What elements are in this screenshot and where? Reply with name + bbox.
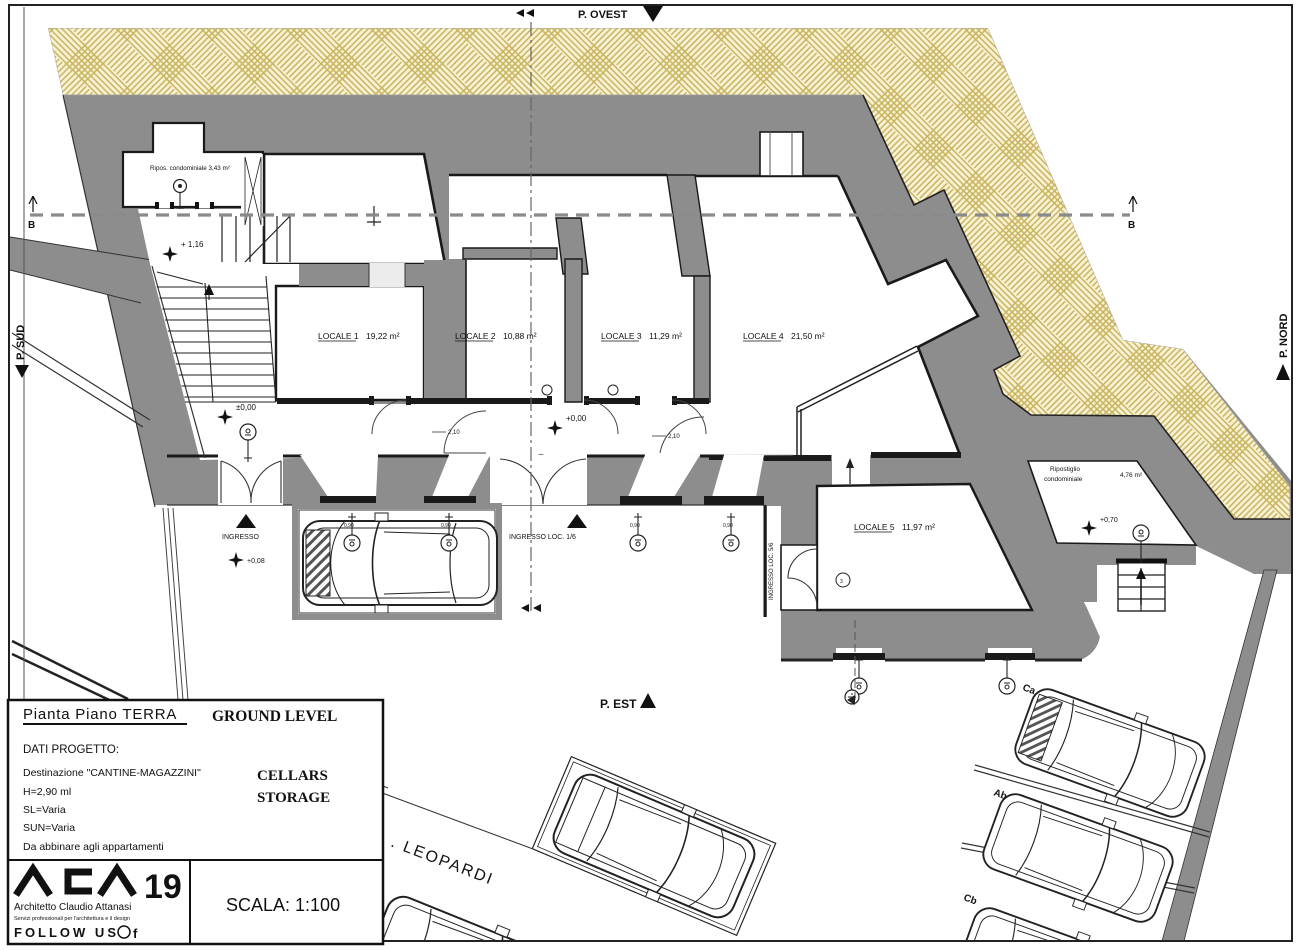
svg-text:INGRESSO LOC. 1/6: INGRESSO LOC. 1/6 <box>509 534 576 541</box>
svg-text:INGRESSO: INGRESSO <box>222 534 260 541</box>
svg-text:SL=Varia: SL=Varia <box>23 804 66 816</box>
svg-text:Architetto Claudio Attanasi: Architetto Claudio Attanasi <box>14 902 131 913</box>
svg-text:2,10: 2,10 <box>668 434 680 440</box>
svg-text:SCALA: 1:100: SCALA: 1:100 <box>226 895 340 915</box>
svg-text:f: f <box>133 926 138 941</box>
svg-text:P. SUD: P. SUD <box>15 325 27 360</box>
svg-text:0,90: 0,90 <box>344 523 354 529</box>
svg-text:LOCALE 1: LOCALE 1 <box>318 331 359 341</box>
svg-text:LOCALE 4: LOCALE 4 <box>743 331 784 341</box>
svg-text:B: B <box>28 220 35 231</box>
svg-text:Destinazione "CANTINE-MAGAZZIN: Destinazione "CANTINE-MAGAZZINI" <box>23 767 201 779</box>
svg-text:+0,08: +0,08 <box>247 558 265 565</box>
svg-text:FOLLOW US: FOLLOW US <box>14 925 119 940</box>
svg-text:+ 1,16: + 1,16 <box>181 240 204 249</box>
svg-text:19: 19 <box>144 868 182 906</box>
svg-text:2,10: 2,10 <box>448 430 460 436</box>
svg-text:0,90: 0,90 <box>723 523 733 529</box>
svg-text:P. EST: P. EST <box>600 697 637 711</box>
svg-text:SUN=Varia: SUN=Varia <box>23 822 75 834</box>
svg-text:Pianta Piano TERRA: Pianta Piano TERRA <box>23 706 177 723</box>
svg-text:Ripos. condominiale 3,43 m²: Ripos. condominiale 3,43 m² <box>150 165 230 172</box>
svg-text:+0,00: +0,00 <box>566 414 587 423</box>
svg-text:P. OVEST: P. OVEST <box>578 9 628 21</box>
svg-text:LOCALE 2: LOCALE 2 <box>455 331 496 341</box>
svg-text:P. NORD: P. NORD <box>1278 314 1290 358</box>
svg-text:+0,70: +0,70 <box>1100 517 1118 524</box>
svg-text:11,97 m²: 11,97 m² <box>902 522 935 532</box>
svg-text:Ripostiglio: Ripostiglio <box>1050 466 1080 473</box>
svg-text:3: 3 <box>840 579 843 585</box>
svg-text:DATI PROGETTO:: DATI PROGETTO: <box>23 744 119 756</box>
svg-text:LOCALE 3: LOCALE 3 <box>601 331 642 341</box>
svg-text:0,90: 0,90 <box>630 523 640 529</box>
svg-text:4,76 m²: 4,76 m² <box>1120 472 1143 479</box>
svg-text:19,22 m²: 19,22 m² <box>366 331 400 341</box>
svg-text:0,90: 0,90 <box>441 523 451 529</box>
svg-text:CELLARS: CELLARS <box>257 768 328 784</box>
svg-text:LOCALE 5: LOCALE 5 <box>854 522 895 532</box>
svg-text:H=2,90 ml: H=2,90 ml <box>23 786 71 798</box>
svg-text:STORAGE: STORAGE <box>257 790 330 806</box>
svg-text:10,88 m²: 10,88 m² <box>503 331 537 341</box>
svg-text:Da abbinare agli appartamenti: Da abbinare agli appartamenti <box>23 841 164 853</box>
svg-text:Servizi professionali per l'ar: Servizi professionali per l'architettura… <box>14 916 130 922</box>
svg-text:±0,00: ±0,00 <box>236 403 257 412</box>
svg-text:B: B <box>1128 220 1135 231</box>
svg-text:11,29 m²: 11,29 m² <box>649 331 682 341</box>
svg-text:condominiale: condominiale <box>1044 476 1083 483</box>
svg-text:21,50 m²: 21,50 m² <box>791 331 825 341</box>
svg-text:GROUND LEVEL: GROUND LEVEL <box>212 708 337 725</box>
svg-text:INGRESSO LOC. 5/6: INGRESSO LOC. 5/6 <box>769 542 775 600</box>
